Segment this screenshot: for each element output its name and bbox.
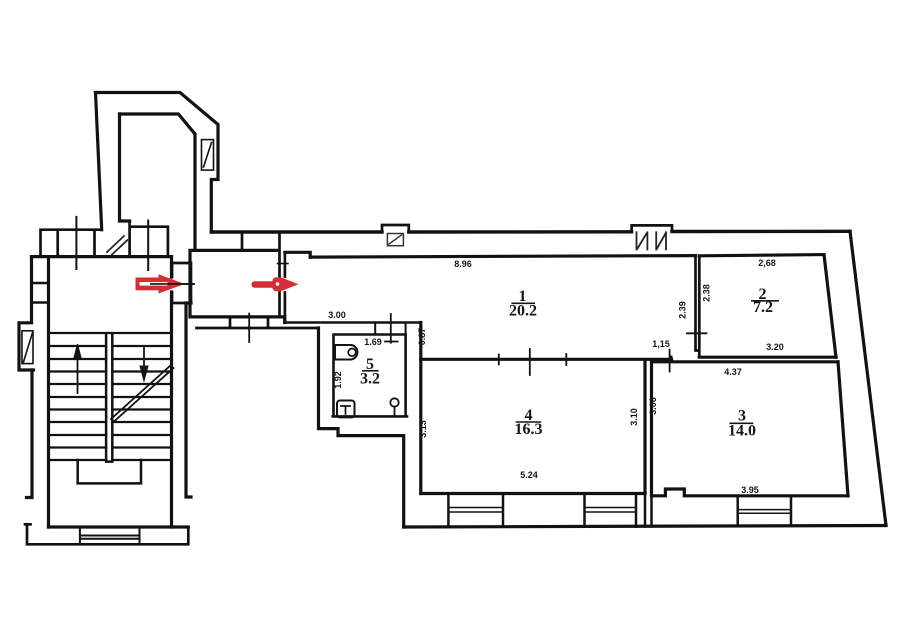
svg-text:14.0: 14.0 [728, 423, 756, 440]
svg-text:5.24: 5.24 [520, 470, 538, 480]
svg-text:4.37: 4.37 [724, 367, 742, 377]
svg-text:3.2: 3.2 [360, 371, 380, 388]
svg-text:7.2: 7.2 [753, 299, 773, 316]
svg-text:8.96: 8.96 [454, 259, 472, 269]
svg-text:1.69: 1.69 [364, 337, 382, 347]
svg-text:3.00: 3.00 [328, 310, 346, 320]
svg-text:3.20: 3.20 [766, 342, 784, 352]
svg-text:16.3: 16.3 [515, 421, 543, 438]
svg-text:2.39: 2.39 [678, 301, 688, 319]
svg-text:2,68: 2,68 [758, 258, 776, 268]
svg-text:3.10: 3.10 [629, 408, 639, 426]
svg-text:0.87: 0.87 [417, 328, 427, 346]
svg-text:3.06: 3.06 [648, 397, 658, 415]
svg-text:20.2: 20.2 [509, 303, 537, 320]
svg-text:1,15: 1,15 [652, 339, 670, 349]
svg-text:2.38: 2.38 [702, 284, 712, 302]
svg-text:3.95: 3.95 [741, 485, 759, 495]
svg-text:3.13: 3.13 [418, 420, 428, 438]
svg-text:1.92: 1.92 [333, 371, 343, 389]
